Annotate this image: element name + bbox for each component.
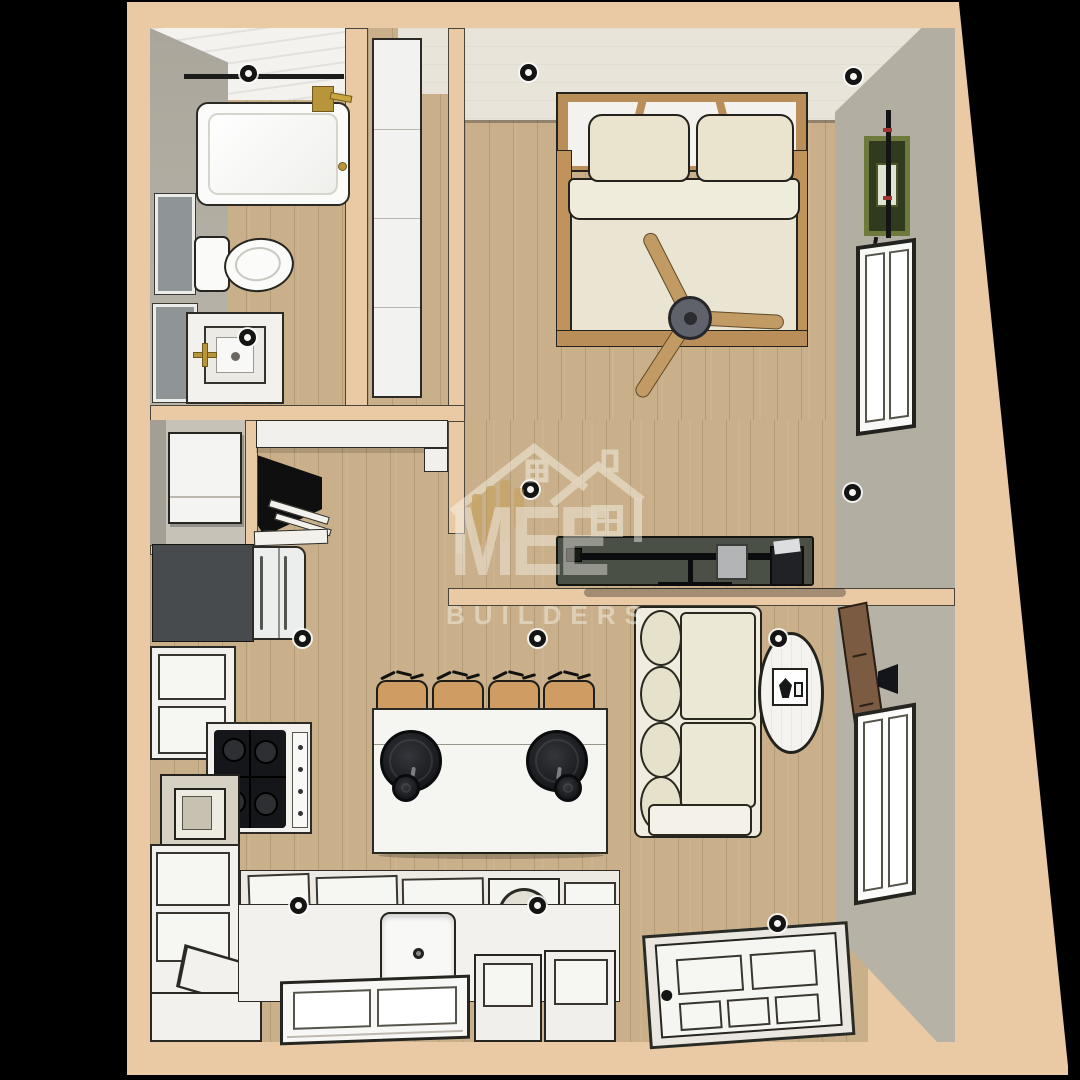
recessed-light	[529, 897, 546, 914]
burner	[254, 740, 278, 764]
bathroom-mirror-upper	[155, 194, 195, 294]
table-decor-icon	[779, 678, 792, 698]
tv-base	[658, 582, 732, 586]
kitchen-top-counter	[256, 420, 448, 448]
corner-tv-base	[254, 529, 328, 547]
cabinet-drawer	[156, 852, 230, 906]
living-window	[854, 703, 916, 906]
fridge-handle	[284, 556, 287, 630]
console-basket	[716, 544, 748, 580]
side-table	[772, 668, 808, 706]
toilet-seat	[233, 245, 282, 284]
rod-tick	[883, 128, 892, 132]
sofa-back-cushion	[640, 722, 682, 778]
console-shadow	[584, 588, 846, 597]
storage-bench	[474, 954, 542, 1042]
shelf-line	[374, 129, 420, 130]
door-panel	[676, 955, 744, 996]
window-pane	[888, 714, 908, 888]
fan-hub	[684, 312, 697, 325]
door-panel	[775, 993, 821, 1024]
sofa	[634, 606, 762, 838]
pendant-light-small	[392, 774, 420, 802]
laundry-closet	[150, 420, 245, 545]
rod-tick	[883, 196, 892, 200]
recessed-light	[520, 64, 537, 81]
recessed-light	[294, 630, 311, 647]
sink-drain	[413, 948, 424, 959]
sofa-seat-cushion	[680, 612, 756, 720]
wall-bedroom-left	[448, 28, 465, 534]
knob	[298, 767, 303, 772]
duvet-fold	[568, 178, 800, 220]
door-panel	[750, 949, 818, 990]
sofa-seat-cushion	[680, 722, 756, 808]
refrigerator-top	[152, 544, 254, 642]
door-panel	[727, 997, 771, 1028]
recessed-light	[770, 630, 787, 647]
knob	[298, 811, 303, 816]
appliance-line	[170, 496, 240, 498]
range-knob-strip	[292, 732, 308, 828]
door-panel	[679, 1000, 723, 1031]
knob	[298, 789, 303, 794]
fridge-door-split	[278, 548, 280, 638]
recessed-light	[529, 630, 546, 647]
panel-handle	[853, 653, 867, 658]
recessed-light	[239, 329, 256, 346]
recessed-light	[290, 897, 307, 914]
laundry-left-wall	[150, 420, 166, 545]
window-pane	[293, 989, 371, 1030]
bench-lid	[483, 963, 533, 1007]
bathtub-basin	[208, 113, 338, 195]
floor-plan-render: MEE BUILDERS	[0, 0, 1080, 1080]
vanity-drain	[231, 352, 240, 361]
sofa-back-cushion	[640, 610, 682, 666]
shelf-line	[374, 307, 420, 308]
storage-bench	[544, 950, 616, 1042]
closet-shelf-unit	[372, 38, 422, 398]
grate-line	[249, 730, 251, 828]
window-pane	[865, 252, 885, 423]
laundry-appliance	[168, 432, 242, 524]
panel-handle	[859, 702, 873, 707]
burner	[222, 738, 246, 762]
tub-drain	[338, 162, 347, 171]
fridge-handle	[260, 556, 263, 630]
range-hood	[160, 774, 240, 850]
sofa-back-cushion	[640, 666, 682, 722]
pillow	[696, 114, 794, 182]
recessed-light	[844, 484, 861, 501]
bathtub	[196, 102, 350, 206]
shelf-line	[374, 218, 420, 219]
tv-stand	[688, 560, 693, 584]
door-knob-icon	[661, 990, 673, 1002]
window-sill-line	[287, 1030, 463, 1038]
window-pane	[863, 718, 883, 892]
counter-corner-return	[424, 448, 448, 472]
sofa-blanket	[648, 804, 752, 836]
recessed-light	[845, 68, 862, 85]
counter-shadow	[256, 448, 434, 453]
entry-door	[655, 932, 843, 1038]
fan-motor	[668, 296, 712, 340]
burner	[254, 792, 278, 816]
bench-lid	[554, 959, 608, 1005]
refrigerator-doors	[252, 546, 306, 640]
recessed-light	[522, 481, 539, 498]
table-book-icon	[794, 682, 803, 697]
pillow	[588, 114, 690, 182]
range-hood-chimney	[182, 796, 212, 830]
window-pane	[377, 986, 457, 1027]
window-pane	[889, 249, 909, 420]
vanity-faucet-handle-icon	[202, 343, 208, 367]
cabinet-door	[158, 654, 226, 700]
entry-door-assembly	[642, 921, 862, 1057]
shower-rod	[184, 74, 344, 79]
recessed-light	[769, 915, 786, 932]
recessed-light	[240, 65, 257, 82]
kitchen-window	[280, 975, 470, 1046]
bedroom-window	[856, 238, 916, 436]
bathroom-vanity	[186, 312, 284, 404]
wall-bathroom-closet	[345, 28, 368, 420]
knob	[298, 745, 303, 750]
island-shadow	[378, 852, 604, 859]
media-console	[556, 536, 814, 586]
pendant-light-small	[554, 774, 582, 802]
